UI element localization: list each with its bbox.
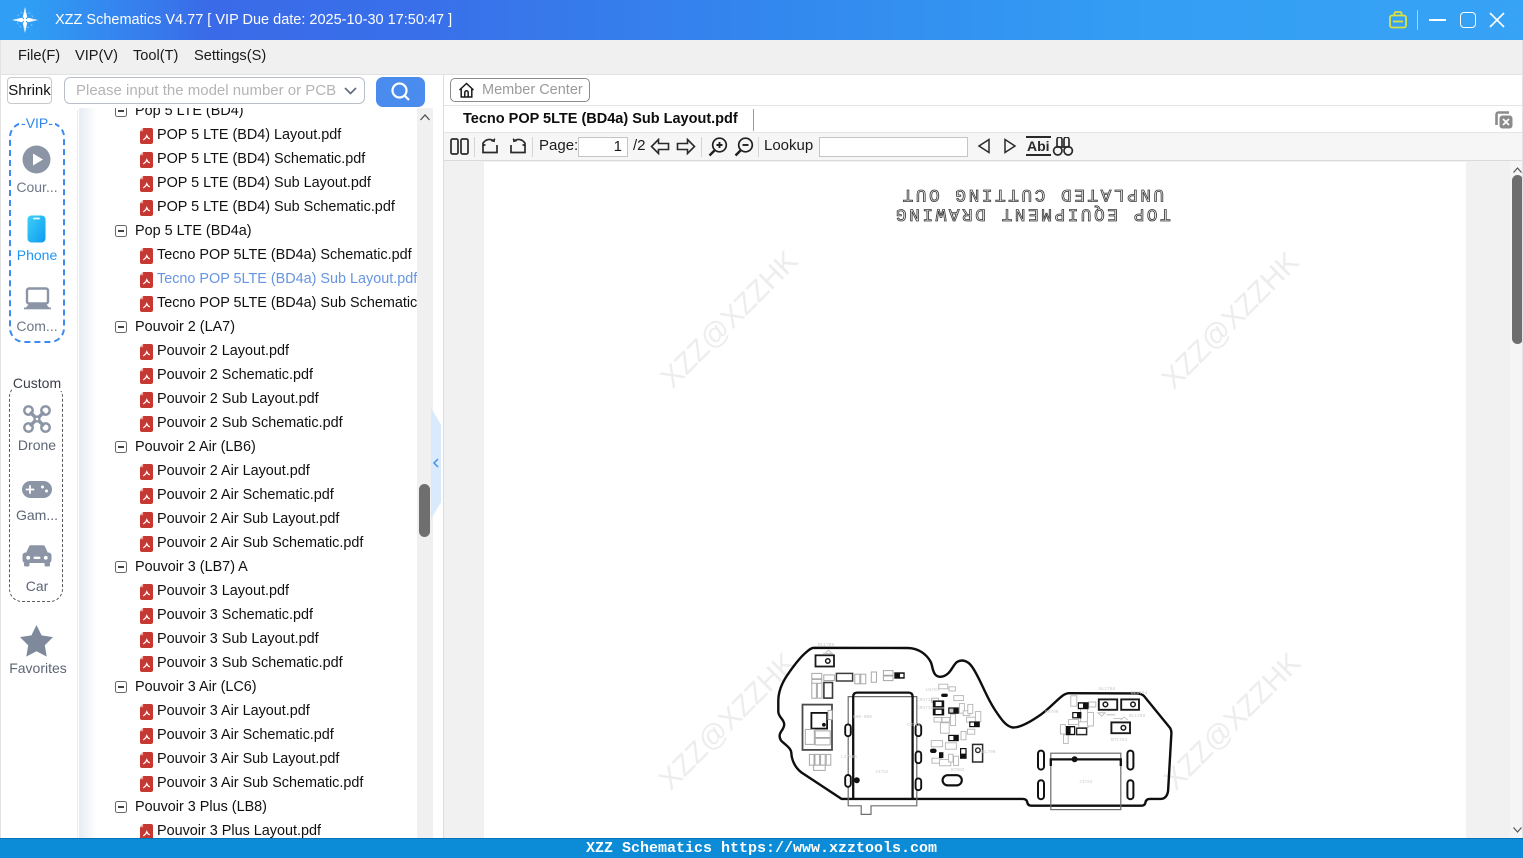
svg-text:BT952: BT952 xyxy=(951,767,965,773)
svg-text:UNPLATED CUTTING OUT: UNPLATED CUTTING OUT xyxy=(900,184,1164,204)
svg-text:CM4715: CM4715 xyxy=(917,705,934,711)
svg-text:CM790: CM790 xyxy=(1045,709,1059,715)
svg-text:BL1786: BL1786 xyxy=(818,642,835,648)
svg-text:CM716: CM716 xyxy=(907,722,921,728)
svg-text:L4756A: L4756A xyxy=(841,754,858,760)
svg-text:J4782: J4782 xyxy=(875,769,889,775)
svg-text:XZZ@XZZHK: XZZ@XZZHK xyxy=(655,245,805,395)
svg-text:TOP EQUIPMENT DRAWING: TOP EQUIPMENT DRAWING xyxy=(893,204,1170,224)
svg-text:J4783: J4783 xyxy=(1079,779,1093,785)
svg-text:CM4714: CM4714 xyxy=(917,697,934,703)
svg-text:U4701: U4701 xyxy=(926,687,940,693)
svg-text:800-000: 800-000 xyxy=(853,714,872,720)
svg-text:BL1794: BL1794 xyxy=(1131,690,1148,696)
svg-text:BL1788: BL1788 xyxy=(1099,686,1116,692)
svg-text:XZZ@XZZHK: XZZ@XZZHK xyxy=(1156,246,1306,396)
svg-text:BL790: BL790 xyxy=(982,749,996,755)
svg-text:BL1789: BL1789 xyxy=(1129,713,1146,719)
svg-text:XZZ@XZZHK: XZZ@XZZHK xyxy=(1158,647,1308,797)
svg-text:BT1753: BT1753 xyxy=(1111,737,1128,743)
svg-text:XZZ@XZZHK: XZZ@XZZHK xyxy=(653,647,803,797)
